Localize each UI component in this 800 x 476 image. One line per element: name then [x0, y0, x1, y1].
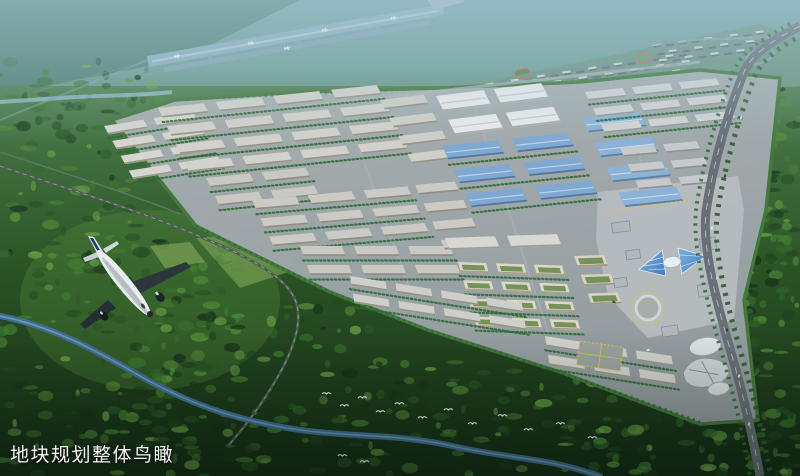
aerial-scene: [0, 0, 800, 476]
caption-title: 地块规划整体鸟瞰: [10, 440, 174, 467]
circular-plaza: [636, 296, 660, 320]
airplane-nose: [147, 311, 153, 317]
birdseye-rendering: 地块规划整体鸟瞰: [0, 0, 800, 476]
atmosphere-haze: [0, 0, 800, 145]
